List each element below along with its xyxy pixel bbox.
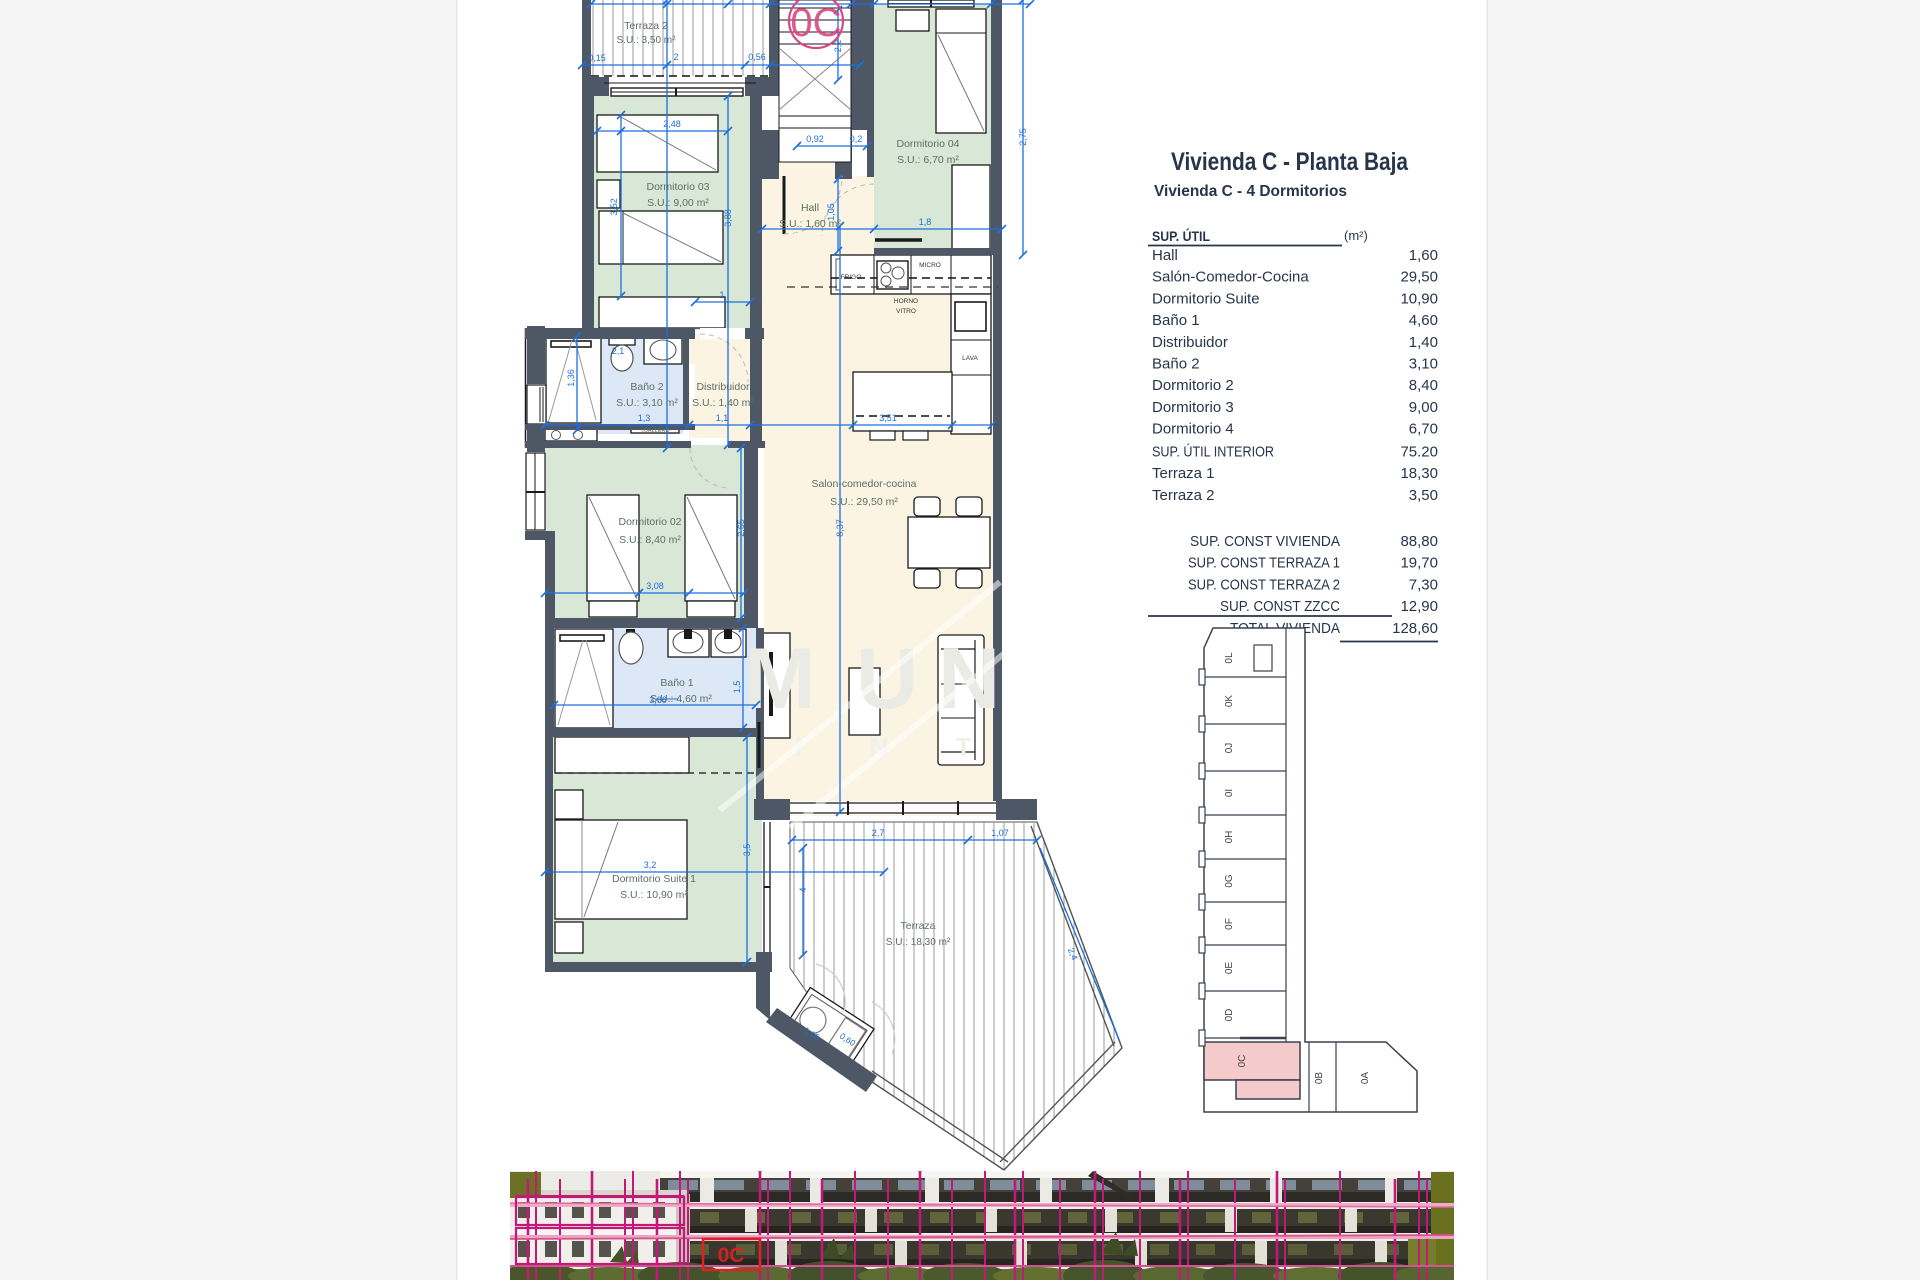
svg-text:0D: 0D [1224,1009,1235,1022]
svg-text:75.20: 75.20 [1400,444,1438,461]
svg-text:0L: 0L [1224,652,1235,664]
svg-text:Terraza 2: Terraza 2 [1152,487,1215,504]
svg-text:SUP. CONST ZZCC: SUP. CONST ZZCC [1220,598,1340,615]
svg-text:19,70: 19,70 [1400,555,1438,572]
svg-text:128,60: 128,60 [1392,620,1438,637]
svg-text:Dormitorio 04: Dormitorio 04 [896,138,959,150]
svg-text:S.U.: 4,60 m²: S.U.: 4,60 m² [650,693,712,705]
svg-text:LAVA: LAVA [962,355,978,362]
svg-text:Salon-comedor-cocina: Salon-comedor-cocina [811,478,916,490]
svg-text:88,80: 88,80 [1400,533,1438,550]
svg-text:1: 1 [719,290,724,300]
svg-text:10,90: 10,90 [1400,290,1438,307]
svg-text:S.U.: 10,90 m²: S.U.: 10,90 m² [620,889,688,901]
svg-text:0B: 0B [1314,1072,1325,1085]
svg-text:Baño 2: Baño 2 [1152,356,1200,373]
svg-text:Vivienda C - 4 Dormitorios: Vivienda C - 4 Dormitorios [1154,183,1347,200]
svg-text:SUP. CONST TERRAZA 1: SUP. CONST TERRAZA 1 [1188,555,1340,572]
svg-text:Terraza: Terraza [900,920,935,932]
svg-text:Baño 2: Baño 2 [630,381,663,393]
svg-text:SUP. ÚTIL INTERIOR: SUP. ÚTIL INTERIOR [1152,444,1274,461]
svg-text:1,1: 1,1 [716,413,729,423]
svg-text:3,08: 3,08 [646,581,664,591]
svg-text:(m²): (m²) [1344,228,1368,243]
svg-text:1,36: 1,36 [566,369,576,387]
svg-text:0K: 0K [1224,695,1235,708]
svg-text:Hall: Hall [1152,247,1178,264]
svg-text:Distribuidor: Distribuidor [696,381,750,393]
svg-text:3,5: 3,5 [742,844,752,857]
svg-text:MICRO: MICRO [919,262,941,269]
svg-text:Distribuidor: Distribuidor [1152,334,1228,351]
svg-text:0G: 0G [1224,874,1235,888]
svg-text:Terraza 2: Terraza 2 [624,20,668,32]
svg-text:3,50: 3,50 [1409,487,1438,504]
svg-text:0,92: 0,92 [806,134,824,144]
svg-text:0C: 0C [790,1,841,45]
svg-text:S.U.: 8,40 m²: S.U.: 8,40 m² [619,534,681,546]
svg-text:1,5: 1,5 [732,681,742,694]
svg-text:8,37: 8,37 [835,519,845,537]
svg-text:1,8: 1,8 [919,217,932,227]
svg-text:Vivienda C - Planta Baja: Vivienda C - Planta Baja [1171,148,1409,176]
svg-text:0J: 0J [1224,743,1235,754]
svg-text:S.U.: 18,30 m²: S.U.: 18,30 m² [886,937,951,948]
svg-text:Baño 1: Baño 1 [660,677,693,689]
svg-text:3,88: 3,88 [723,209,733,227]
svg-text:0,2: 0,2 [850,134,863,144]
svg-text:1,40: 1,40 [1409,334,1438,351]
svg-text:0C: 0C [1237,1055,1248,1068]
svg-text:3,10: 3,10 [1409,356,1438,373]
svg-text:2: 2 [673,52,678,62]
svg-text:U: U [856,631,918,727]
svg-text:VITRO: VITRO [896,308,916,315]
svg-text:SUP. CONST TERRAZA 2: SUP. CONST TERRAZA 2 [1188,576,1340,593]
svg-text:Dormitorio 02: Dormitorio 02 [618,516,681,528]
svg-text:S.U.: 9,00 m²: S.U.: 9,00 m² [647,197,709,209]
svg-text:2,75: 2,75 [1018,128,1028,146]
svg-text:3,2: 3,2 [644,860,657,870]
svg-text:Dormitorio Suite: Dormitorio Suite [1152,290,1260,307]
svg-text:HORNO: HORNO [894,298,918,305]
svg-text:0I: 0I [1224,789,1235,797]
svg-text:4,60: 4,60 [1409,312,1438,329]
svg-text:0,15: 0,15 [588,53,606,63]
svg-text:6,70: 6,70 [1409,421,1438,438]
svg-text:Dormitorio 3: Dormitorio 3 [1152,399,1234,416]
svg-text:FRIGO: FRIGO [841,274,862,281]
svg-text:Dormitorio 2: Dormitorio 2 [1152,377,1234,394]
svg-text:0F: 0F [1224,918,1235,930]
svg-text:S.U.: 3,10 m²: S.U.: 3,10 m² [616,397,678,409]
svg-text:Dormitorio Suite 1: Dormitorio Suite 1 [612,873,696,885]
svg-text:0,56: 0,56 [748,52,766,62]
svg-text:2,48: 2,48 [663,119,681,129]
svg-text:2,65: 2,65 [736,519,746,537]
svg-text:SUP. CONST VIVIENDA: SUP. CONST VIVIENDA [1190,533,1340,550]
svg-text:0C: 0C [718,1244,745,1267]
svg-text:1,3: 1,3 [638,413,651,423]
svg-text:29,50: 29,50 [1400,269,1438,286]
svg-text:8,40: 8,40 [1409,377,1438,394]
svg-text:0A: 0A [1360,1072,1371,1085]
svg-text:4: 4 [798,887,808,892]
svg-text:S.U.: 6,70 m²: S.U.: 6,70 m² [897,154,959,166]
svg-text:Dormitorio 4: Dormitorio 4 [1152,421,1234,438]
svg-text:12,90: 12,90 [1400,598,1438,615]
svg-text:SUP. ÚTIL: SUP. ÚTIL [1152,227,1210,244]
svg-text:Terraza 1: Terraza 1 [1152,465,1215,482]
svg-text:0E: 0E [1224,962,1235,975]
svg-text:9,00: 9,00 [1409,399,1438,416]
svg-text:TOALLERO: TOALLERO [640,428,670,434]
svg-text:3,52: 3,52 [609,198,619,216]
svg-text:3,51: 3,51 [879,413,897,423]
svg-text:1,07: 1,07 [991,828,1009,838]
svg-text:1,60: 1,60 [1409,247,1438,264]
svg-text:Dormitorio 03: Dormitorio 03 [646,181,709,193]
svg-text:Hall: Hall [801,202,819,214]
svg-text:7,30: 7,30 [1409,576,1438,593]
svg-text:S.U.: 1,40 m²: S.U.: 1,40 m² [692,397,754,409]
svg-text:2,7: 2,7 [872,828,885,838]
svg-text:0H: 0H [1224,831,1235,844]
svg-text:2,1: 2,1 [612,346,625,356]
svg-text:Salón-Comedor-Cocina: Salón-Comedor-Cocina [1152,269,1309,286]
svg-text:S.U.: 29,50 m²: S.U.: 29,50 m² [830,496,898,508]
svg-text:M: M [744,631,816,727]
svg-text:18,30: 18,30 [1400,465,1438,482]
svg-text:S.U.: 1,60 m²: S.U.: 1,60 m² [779,218,841,230]
svg-text:Baño 1: Baño 1 [1152,312,1200,329]
